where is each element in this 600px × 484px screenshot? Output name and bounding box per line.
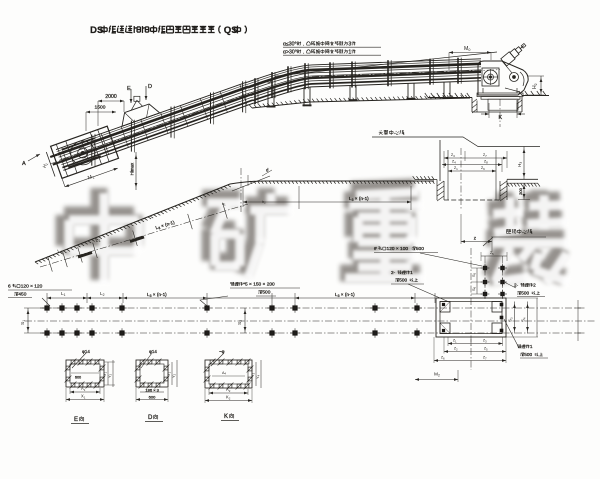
svg-text:α≤30°: α≤30° (283, 41, 297, 47)
svg-text:1: 1 (348, 49, 351, 55)
svg-text:E: E (127, 86, 131, 92)
svg-text:QS: QS (224, 25, 238, 36)
svg-text:A2: A2 (226, 387, 231, 393)
svg-text:600: 600 (149, 394, 156, 399)
svg-text:S3: S3 (508, 317, 514, 322)
svg-text:500: 500 (524, 352, 532, 357)
svg-text:z7: z7 (483, 355, 487, 361)
svg-text:120 × 120: 120 × 120 (21, 284, 43, 290)
svg-text:z5: z5 (484, 346, 488, 352)
svg-text:D: D (148, 84, 152, 90)
svg-text:2-: 2- (514, 283, 519, 288)
svg-text:D: D (148, 415, 153, 421)
svg-text:1: 1 (410, 270, 413, 275)
svg-text:600: 600 (75, 375, 81, 379)
svg-text:z1: z1 (453, 338, 457, 344)
svg-text:α>30°: α>30° (283, 49, 297, 55)
svg-text:500: 500 (262, 290, 270, 296)
svg-text:3: 3 (348, 41, 351, 47)
svg-text:X1: X1 (81, 394, 86, 400)
svg-text:K: K (499, 115, 503, 121)
svg-text:*5 × 150 × 200: *5 × 150 × 200 (243, 282, 275, 288)
svg-text:1: 1 (530, 344, 533, 349)
svg-text:z7: z7 (483, 152, 487, 158)
svg-text:DS: DS (90, 25, 104, 36)
svg-text:φ14: φ14 (149, 349, 157, 354)
svg-text:450: 450 (18, 292, 26, 298)
svg-text:500: 500 (521, 291, 529, 296)
svg-text:500: 500 (399, 278, 407, 283)
svg-text:2-: 2- (391, 270, 396, 275)
svg-text:z8: z8 (484, 159, 488, 165)
svg-text:1500: 1500 (95, 105, 106, 111)
svg-text:A1: A1 (81, 386, 86, 392)
svg-text:A4: A4 (222, 371, 226, 376)
svg-text:6: 6 (8, 284, 11, 290)
svg-text:A: A (22, 161, 26, 167)
svg-text:z3: z3 (451, 152, 455, 158)
svg-text:500: 500 (416, 246, 424, 252)
svg-text:E: E (74, 417, 78, 423)
svg-text:#: # (374, 246, 377, 252)
svg-text:φ14: φ14 (82, 349, 90, 354)
svg-text:2000: 2000 (105, 94, 117, 100)
svg-text:z2: z2 (454, 346, 458, 352)
svg-text:Himax: Himax (130, 162, 135, 175)
svg-text:186 × 3: 186 × 3 (145, 387, 159, 392)
svg-text:z6: z6 (481, 165, 485, 171)
svg-text:K2: K2 (226, 395, 231, 401)
svg-text:z4: z4 (452, 159, 456, 165)
svg-text:z5: z5 (490, 250, 494, 256)
svg-text:K: K (224, 414, 228, 420)
svg-text:200: 200 (518, 187, 523, 194)
svg-text:z1: z1 (454, 165, 458, 171)
svg-text:120 × 100: 120 × 100 (387, 246, 409, 252)
svg-text:2: 2 (533, 283, 536, 288)
svg-text:z3: z3 (483, 338, 487, 344)
svg-text:z6: z6 (441, 355, 445, 361)
svg-text:S4: S4 (521, 317, 527, 322)
